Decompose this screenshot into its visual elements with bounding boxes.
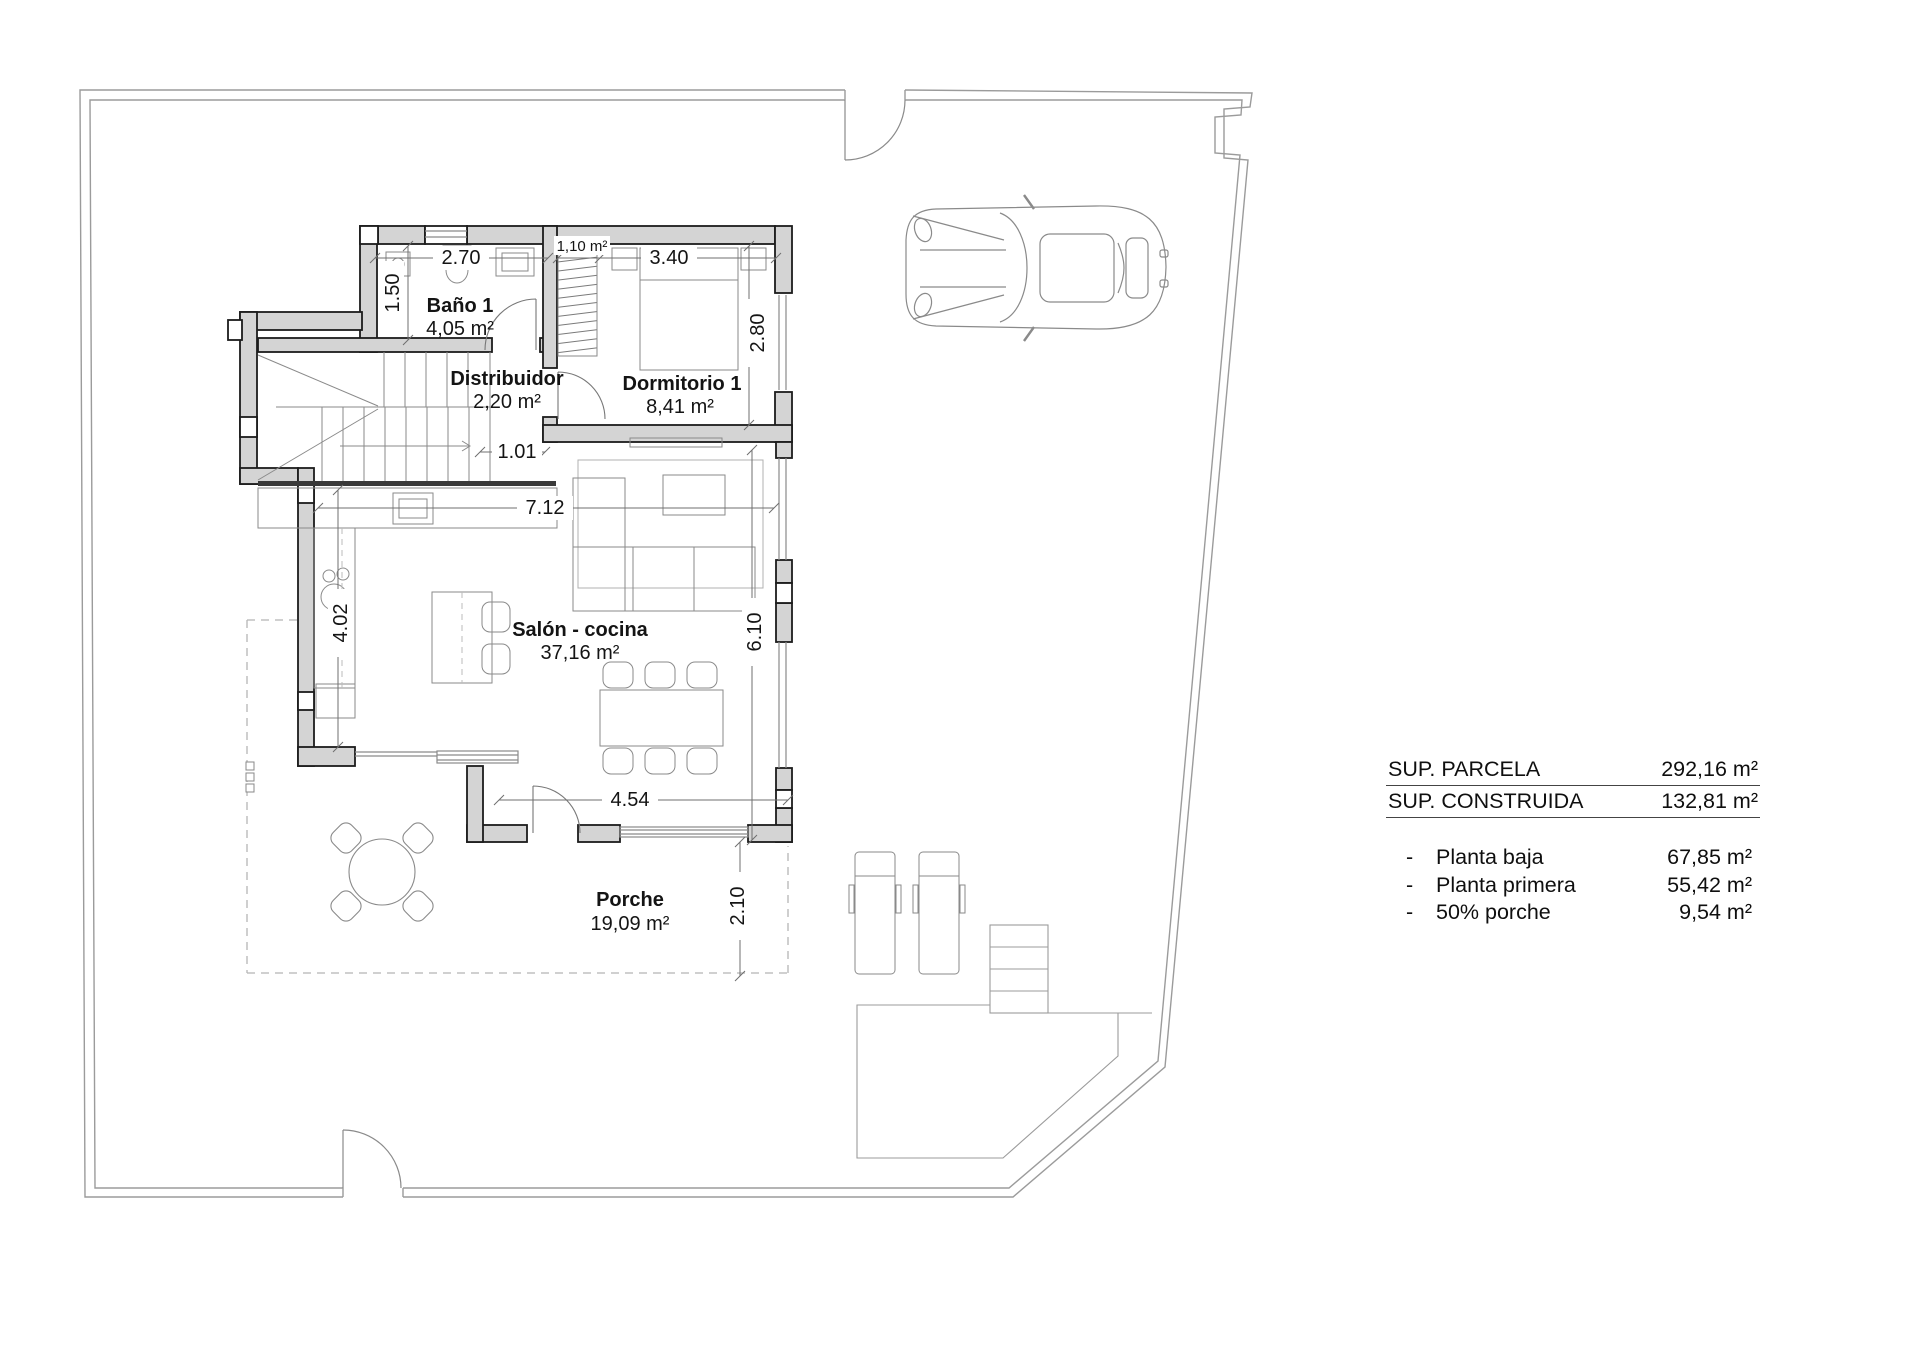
porch-wall-symbols xyxy=(246,762,254,792)
svg-text:1.50: 1.50 xyxy=(382,274,404,313)
bullet-dash: - xyxy=(1386,899,1436,927)
gate-bottom xyxy=(343,1130,401,1188)
room-label-salon: Salón - cocina 37,16 m² xyxy=(512,619,648,664)
summary-detail-rows: - Planta baja 67,85 m² - Planta primera … xyxy=(1386,844,1760,927)
bullet-dash: - xyxy=(1386,872,1436,900)
svg-text:Distribuidor: Distribuidor xyxy=(450,368,564,390)
sun-lounger xyxy=(913,852,965,974)
pool-steps xyxy=(857,925,1152,1158)
svg-text:8,41 m²: 8,41 m² xyxy=(646,396,714,418)
dim-salon-height: 6.10 xyxy=(742,598,766,666)
dim-porch-width: 4.54 xyxy=(602,788,658,812)
svg-text:Dormitorio 1: Dormitorio 1 xyxy=(623,373,742,395)
summary-value: 292,16 m² xyxy=(1661,756,1758,782)
summary-row-parcela: SUP. PARCELA 292,16 m² xyxy=(1386,756,1760,786)
summary-value: 67,85 m² xyxy=(1667,844,1760,872)
summary-value: 132,81 m² xyxy=(1661,788,1758,814)
summary-row-porche: - 50% porche 9,54 m² xyxy=(1386,899,1760,927)
bullet-dash: - xyxy=(1386,844,1436,872)
summary-value: 55,42 m² xyxy=(1667,872,1760,900)
room-label-distribuidor: Distribuidor 2,20 m² xyxy=(450,368,564,413)
summary-label: SUP. CONSTRUIDA xyxy=(1388,788,1584,814)
sun-lounger xyxy=(849,852,901,974)
summary-row-planta-baja: - Planta baja 67,85 m² xyxy=(1386,844,1760,872)
dim-bath-height: 1.50 xyxy=(380,261,404,325)
dim-bed-width: 3.40 xyxy=(641,246,697,270)
svg-text:4.02: 4.02 xyxy=(330,604,352,643)
wardrobe xyxy=(558,250,597,356)
svg-text:1.01: 1.01 xyxy=(498,441,537,463)
svg-text:2.80: 2.80 xyxy=(747,314,769,353)
summary-label: Planta primera xyxy=(1436,872,1667,900)
dim-kitchen-height: 4.02 xyxy=(328,589,352,657)
dim-porch-height: 2.10 xyxy=(725,872,749,940)
svg-text:Salón - cocina: Salón - cocina xyxy=(512,619,648,641)
summary-row-planta-primera: - Planta primera 55,42 m² xyxy=(1386,872,1760,900)
svg-text:Porche: Porche xyxy=(596,889,664,911)
porch-outline xyxy=(247,620,788,973)
svg-text:2.10: 2.10 xyxy=(727,887,749,926)
bedroom-door-icon xyxy=(558,372,605,419)
room-label-porche: Porche 19,09 m² xyxy=(591,889,670,935)
svg-text:7.12: 7.12 xyxy=(526,497,565,519)
svg-text:2.70: 2.70 xyxy=(442,247,481,269)
sofa-set xyxy=(573,438,763,611)
floor-plan-page: 2.70 1.50 1,10 m² 3.40 2.80 1.01 7.12 4.… xyxy=(0,0,1920,1353)
summary-row-construida: SUP. CONSTRUIDA 132,81 m² xyxy=(1386,788,1760,818)
gate-top xyxy=(845,100,905,160)
sun-loungers xyxy=(849,852,965,974)
house-walls xyxy=(240,226,792,842)
svg-text:3.40: 3.40 xyxy=(650,247,689,269)
porch-door-icon xyxy=(533,786,580,833)
summary-label: 50% porche xyxy=(1436,899,1679,927)
dim-wardrobe-area: 1,10 m² xyxy=(554,236,610,255)
summary-label: Planta baja xyxy=(1436,844,1667,872)
svg-text:1,10 m²: 1,10 m² xyxy=(557,238,608,255)
dining-set xyxy=(600,662,723,774)
svg-text:4,05 m²: 4,05 m² xyxy=(426,318,494,340)
dim-salon-width: 7.12 xyxy=(517,496,573,520)
svg-text:37,16 m²: 37,16 m² xyxy=(541,642,620,664)
floor-plan-drawing: 2.70 1.50 1,10 m² 3.40 2.80 1.01 7.12 4.… xyxy=(0,0,1920,1353)
svg-text:6.10: 6.10 xyxy=(744,613,766,652)
dim-door-width: 1.01 xyxy=(492,441,542,463)
summary-label: SUP. PARCELA xyxy=(1388,756,1540,782)
area-summary-table: SUP. PARCELA 292,16 m² SUP. CONSTRUIDA 1… xyxy=(1386,756,1760,927)
room-label-bano: Baño 1 4,05 m² xyxy=(426,295,494,340)
dim-bath-width: 2.70 xyxy=(433,246,489,270)
svg-text:Baño 1: Baño 1 xyxy=(427,295,494,317)
svg-text:4.54: 4.54 xyxy=(611,789,650,811)
svg-text:2,20 m²: 2,20 m² xyxy=(473,391,541,413)
kitchen-island xyxy=(432,592,510,683)
summary-value: 9,54 m² xyxy=(1679,899,1760,927)
dim-bed-height: 2.80 xyxy=(745,299,769,367)
porch-table-set xyxy=(328,820,437,925)
room-label-dormitorio: Dormitorio 1 8,41 m² xyxy=(623,373,742,418)
svg-text:19,09 m²: 19,09 m² xyxy=(591,913,670,935)
stair-edge-line xyxy=(258,481,556,486)
car-top-view xyxy=(906,195,1168,341)
